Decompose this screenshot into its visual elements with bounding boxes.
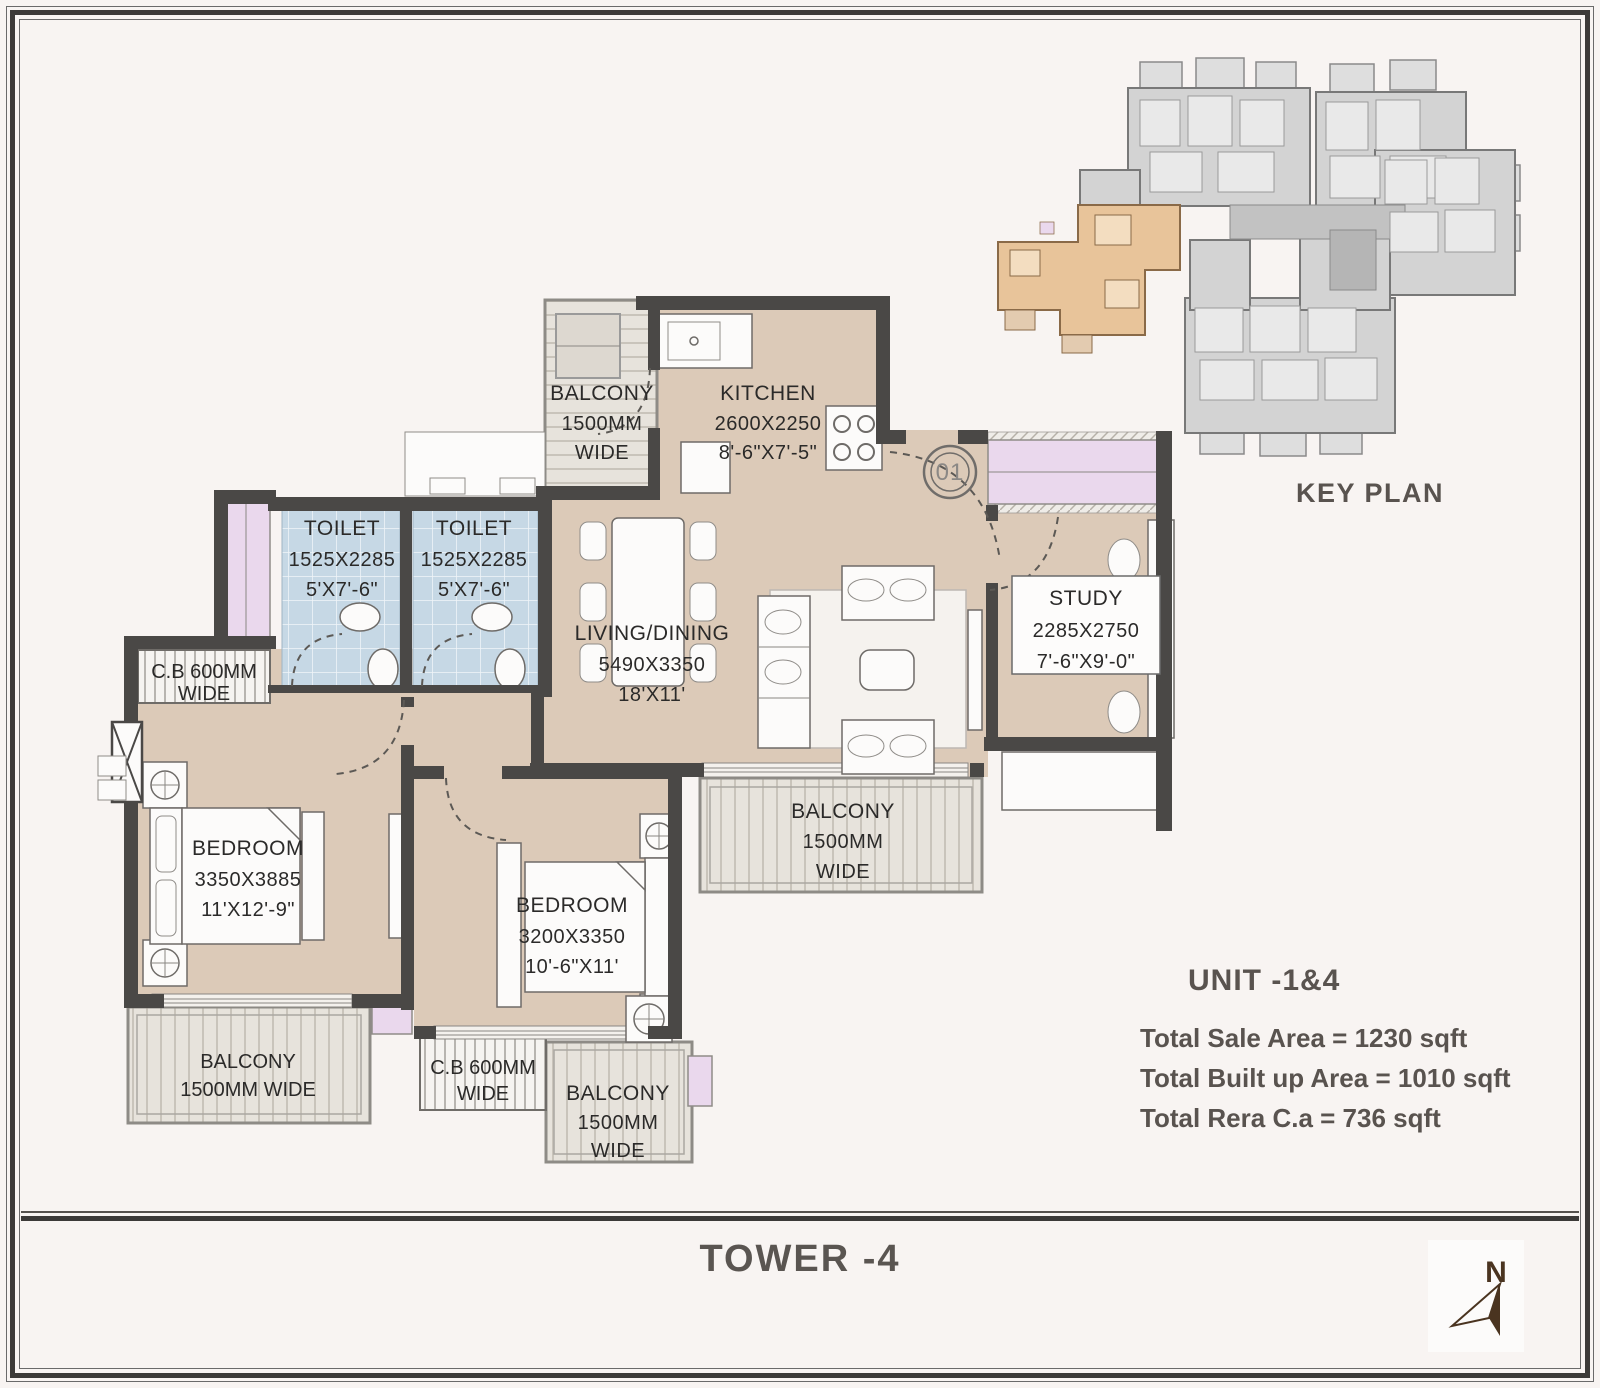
column-and-tabs	[98, 722, 142, 802]
svg-text:WIDE: WIDE	[575, 442, 629, 464]
kitchen-label: KITCHEN	[720, 382, 816, 405]
total-builtup-area: Total Built up Area = 1010 sqft	[1140, 1058, 1511, 1098]
toilet1-label: TOILET	[304, 517, 380, 540]
svg-text:1500MM WIDE: 1500MM WIDE	[180, 1079, 316, 1101]
svg-text:8'-6"X7'-5": 8'-6"X7'-5"	[719, 442, 818, 464]
svg-text:11'X12'-9": 11'X12'-9"	[201, 899, 295, 921]
cupboard-bottom-label: C.B 600MM	[430, 1057, 536, 1079]
key-plan-drawing	[998, 58, 1520, 456]
svg-text:5'X7'-6": 5'X7'-6"	[438, 579, 510, 601]
unit-plan: 01 KITCHEN 2600X2250 8'-6"X7'-5" BALCONY…	[98, 296, 1174, 1162]
living-balcony-label: BALCONY	[791, 800, 895, 823]
svg-text:1525X2285: 1525X2285	[289, 549, 396, 571]
unit-area-info: Total Sale Area = 1230 sqft Total Built …	[1140, 1018, 1511, 1138]
svg-text:2285X2750: 2285X2750	[1033, 620, 1140, 642]
svg-text:WIDE: WIDE	[457, 1083, 509, 1105]
bedroom1-label: BEDROOM	[192, 837, 304, 860]
kitchen-balcony-label: BALCONY	[550, 382, 654, 405]
svg-text:1525X2285: 1525X2285	[421, 549, 528, 571]
svg-text:5'X7'-6": 5'X7'-6"	[306, 579, 378, 601]
cupboard-left-label: C.B 600MM	[151, 661, 257, 683]
svg-text:3350X3885: 3350X3885	[195, 869, 302, 891]
svg-text:WIDE: WIDE	[178, 683, 230, 705]
svg-text:WIDE: WIDE	[591, 1140, 645, 1162]
total-rera-area: Total Rera C.a = 736 sqft	[1140, 1098, 1511, 1138]
svg-text:18'X11': 18'X11'	[618, 684, 685, 706]
svg-text:1500MM: 1500MM	[578, 1112, 659, 1134]
floor-plan-drawing: 01 KITCHEN 2600X2250 8'-6"X7'-5" BALCONY…	[0, 0, 1600, 1388]
svg-text:3200X3350: 3200X3350	[519, 926, 626, 948]
unit-title: UNIT -1&4	[1188, 964, 1340, 998]
footer-divider-thin	[21, 1211, 1579, 1213]
svg-text:1500MM: 1500MM	[803, 831, 884, 853]
total-sale-area: Total Sale Area = 1230 sqft	[1140, 1018, 1511, 1058]
bottom-balcony-label: BALCONY	[566, 1082, 670, 1105]
svg-text:10'-6"X11': 10'-6"X11'	[525, 956, 619, 978]
svg-text:5490X3350: 5490X3350	[599, 654, 706, 676]
study-label: STUDY	[1049, 587, 1123, 610]
master-balcony-label: BALCONY	[200, 1051, 296, 1073]
service-ledge	[1002, 752, 1158, 810]
footer-divider-thick	[21, 1216, 1579, 1221]
svg-text:WIDE: WIDE	[816, 861, 870, 883]
living-label: LIVING/DINING	[575, 622, 730, 645]
key-plan-title: KEY PLAN	[1270, 478, 1470, 509]
svg-text:1500MM: 1500MM	[562, 413, 643, 435]
svg-text:2600X2250: 2600X2250	[715, 413, 822, 435]
bedroom2-label: BEDROOM	[516, 894, 628, 917]
floorplan-page: { "rooms": { "kitchen": {"name": "KITCHE…	[0, 0, 1600, 1388]
tower-title: TOWER -4	[0, 1238, 1600, 1281]
key-plan-highlighted-unit	[998, 205, 1180, 353]
svg-text:7'-6"X9'-0": 7'-6"X9'-0"	[1037, 651, 1136, 673]
entry-number: 01	[936, 459, 965, 486]
toilet2-label: TOILET	[436, 517, 512, 540]
